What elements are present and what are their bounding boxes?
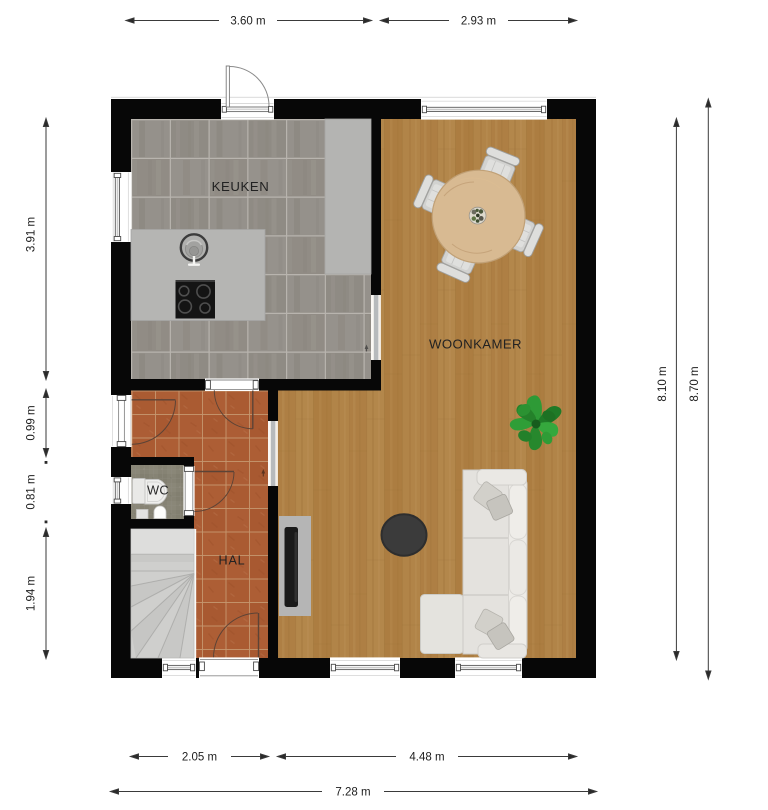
svg-text:WC: WC xyxy=(147,483,169,498)
svg-text:2.93 m: 2.93 m xyxy=(461,16,496,28)
svg-text:1.94 m: 1.94 m xyxy=(26,576,38,611)
svg-text:3.60 m: 3.60 m xyxy=(230,16,265,28)
svg-text:0.81 m: 0.81 m xyxy=(26,474,38,509)
svg-text:8.10 m: 8.10 m xyxy=(657,366,669,401)
svg-text:8.70 m: 8.70 m xyxy=(689,366,701,401)
svg-text:3.91 m: 3.91 m xyxy=(26,217,38,252)
svg-text:7.28 m: 7.28 m xyxy=(335,787,370,799)
svg-text:KEUKEN: KEUKEN xyxy=(212,179,270,194)
svg-text:HAL: HAL xyxy=(219,554,246,568)
svg-text:4.48 m: 4.48 m xyxy=(409,752,444,764)
svg-text:2.05 m: 2.05 m xyxy=(182,752,217,764)
svg-text:WOONKAMER: WOONKAMER xyxy=(429,337,522,352)
svg-text:0.99 m: 0.99 m xyxy=(26,405,38,440)
